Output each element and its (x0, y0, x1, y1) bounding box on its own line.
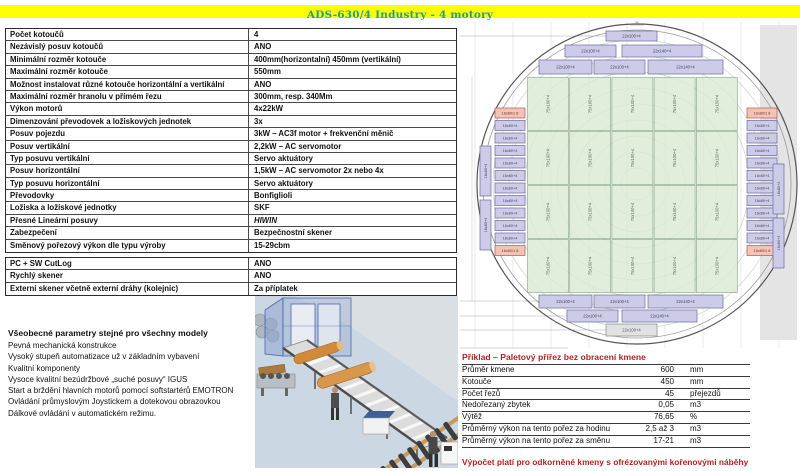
example-rows: Průměr kmene600mm Kotouče450mm Počet řez… (462, 364, 750, 448)
machine-illustration (255, 296, 458, 468)
svg-text:16x80/1 8: 16x80/1 8 (502, 249, 519, 253)
svg-text:16x80+4: 16x80+4 (755, 212, 770, 216)
svg-text:16x80+4: 16x80+4 (755, 187, 770, 191)
svg-text:75x100+4: 75x100+4 (630, 148, 635, 167)
svg-text:16x80+4: 16x80+4 (755, 237, 770, 241)
svg-text:22x100+4: 22x100+4 (581, 49, 600, 54)
svg-text:75x100+4: 75x100+4 (630, 94, 635, 113)
svg-text:75x100+4: 75x100+4 (588, 94, 593, 113)
svg-text:75x100+4: 75x100+4 (630, 202, 635, 221)
table-row: Typ posuvu horizontálníServo aktuátory (6, 178, 456, 190)
left-side-boards: 16x80/1 8 16x80+4 16x80+4 16x80+4 16x80+… (495, 108, 525, 256)
table-row: Výtěž76,65% (462, 411, 750, 423)
svg-text:16x80+4: 16x80+4 (503, 237, 518, 241)
top-boards: 22x100+4 22x100+4 22x140+4 22x100+4 22x1… (539, 31, 723, 74)
table-row: Průměrný výkon na tento pořez za hodinu2… (462, 423, 750, 435)
dimension-tick-label: 56 (635, 21, 639, 25)
table-row: Nezávislý posuv kotoučůANO (6, 41, 456, 53)
table-row: ZabezpečeníBezpečnostní skener (6, 227, 456, 239)
svg-text:22x100+4: 22x100+4 (583, 314, 602, 319)
svg-text:22x100+4: 22x100+4 (622, 34, 641, 39)
svg-text:22x100+4: 22x100+4 (556, 65, 575, 70)
table-row: Maximální rozměr hranolu v přímém řezu30… (6, 91, 456, 103)
svg-text:16x80+4: 16x80+4 (777, 182, 781, 197)
table-row: Počet řezů45přejezdů (462, 388, 750, 400)
svg-text:22x100+4: 22x100+4 (610, 299, 629, 304)
svg-text:75x100+4: 75x100+4 (546, 148, 551, 167)
svg-text:75x100+4: 75x100+4 (672, 148, 677, 167)
example-footer: Výpočet platí pro odkorněné kmeny s ofré… (462, 457, 750, 467)
green-boards: 75x100+4 75x100+4 75x100+4 75x100+4 75x1… (528, 78, 738, 293)
example-table: Příklad – Paletový přířez bez obracení k… (462, 351, 750, 467)
svg-text:75x100+4: 75x100+4 (546, 202, 551, 221)
svg-text:16x80+4: 16x80+4 (503, 224, 518, 228)
svg-text:16x80+4: 16x80+4 (503, 187, 518, 191)
spec-table: Počet kotoučů4 Nezávislý posuv kotoučůAN… (5, 28, 457, 253)
table-row: Směnový pořezový výkon dle typu výroby15… (6, 240, 456, 252)
svg-text:75x100+4: 75x100+4 (714, 148, 719, 167)
svg-text:16x80+4: 16x80+4 (755, 199, 770, 203)
table-row: Rychlý skenerANO (6, 270, 456, 282)
table-row: Průměr kmene600mm (462, 364, 750, 376)
table-row: Dimenzování převodovek a ložiskových jed… (6, 116, 456, 128)
svg-text:22x140+4: 22x140+4 (676, 65, 695, 70)
svg-text:75x100+4: 75x100+4 (588, 202, 593, 221)
table-row: Posuv vertikální2,2kW – AC servomotor (6, 141, 456, 153)
svg-text:16x80+4: 16x80+4 (755, 149, 770, 153)
svg-text:75x100+4: 75x100+4 (630, 256, 635, 275)
svg-text:22x100+4: 22x100+4 (610, 65, 629, 70)
table-row: PC + SW CutLogANO (6, 258, 456, 270)
table-row: Posuv pojezdu3kW – AC3f motor + frekvenč… (6, 128, 456, 140)
svg-text:16x80+4: 16x80+4 (755, 174, 770, 178)
table-row: PřevodovkyBonfiglioli (6, 190, 456, 202)
svg-text:22x100+4: 22x100+4 (556, 299, 575, 304)
table-row: Možnost instalovat různé kotouče horizon… (6, 79, 456, 91)
svg-text:16x80/1 8: 16x80/1 8 (754, 249, 771, 253)
svg-text:16x80+4: 16x80+4 (777, 236, 781, 251)
svg-text:16x80+4: 16x80+4 (503, 199, 518, 203)
svg-text:16x80+4: 16x80+4 (503, 212, 518, 216)
svg-text:75x100+4: 75x100+4 (672, 202, 677, 221)
svg-text:16x80/1 8: 16x80/1 8 (502, 112, 519, 116)
svg-text:75x100+4: 75x100+4 (588, 256, 593, 275)
table-row: Typ posuvu vertikálníServo aktuátory (6, 153, 456, 165)
svg-text:22x140+4: 22x140+4 (676, 299, 695, 304)
svg-text:75x100+4: 75x100+4 (588, 148, 593, 167)
svg-text:75x100+4: 75x100+4 (714, 202, 719, 221)
svg-text:16x80+4: 16x80+4 (503, 149, 518, 153)
table-row: Maximální rozměr kotouče550mm (6, 66, 456, 78)
control-cabinet (441, 442, 458, 464)
svg-text:16x80+4: 16x80+4 (755, 124, 770, 128)
table-row: Minimální rozměr kotouče400mm(horizontal… (6, 54, 456, 66)
svg-text:75x100+4: 75x100+4 (672, 94, 677, 113)
table-row: Ložiska a ložiskové jednotkySKF (6, 202, 456, 214)
svg-text:75x100+4: 75x100+4 (714, 94, 719, 113)
svg-text:16x80+4: 16x80+4 (503, 124, 518, 128)
table-row: Posuv horizontální1,5kW – AC servomotor … (6, 165, 456, 177)
svg-text:75x100+4: 75x100+4 (672, 256, 677, 275)
svg-text:75x100+4: 75x100+4 (546, 94, 551, 113)
title-bar: ADS-630/4 Industry - 4 motory (0, 5, 800, 18)
cutting-diagram: 56 22x100+4 22x100+4 22x140+4 22x100+4 2… (458, 18, 800, 354)
svg-text:16x80+4: 16x80+4 (755, 162, 770, 166)
svg-text:16x80+4: 16x80+4 (503, 162, 518, 166)
table-row: Kotouče450mm (462, 376, 750, 388)
svg-text:22x140+4: 22x140+4 (653, 49, 672, 54)
options-table: PC + SW CutLogANO Rychlý skenerANO Exter… (5, 257, 457, 296)
svg-text:16x80+4: 16x80+4 (503, 137, 518, 141)
svg-text:22x140+4: 22x140+4 (650, 314, 669, 319)
svg-text:16x80+4: 16x80+4 (484, 164, 488, 179)
table-row: Průměrný výkon na tento pořez za směnu17… (462, 435, 750, 447)
table-row: Externí skener včetně externí dráhy (kol… (6, 283, 456, 295)
svg-text:16x80/1 8: 16x80/1 8 (754, 112, 771, 116)
table-row: Počet kotoučů4 (6, 29, 456, 41)
svg-text:75x100+4: 75x100+4 (546, 256, 551, 275)
svg-text:16x80+4: 16x80+4 (503, 174, 518, 178)
svg-text:75x100+4: 75x100+4 (714, 256, 719, 275)
table-row: Nedořezaný zbytek0,05m3 (462, 399, 750, 411)
svg-text:16x80+4: 16x80+4 (484, 218, 488, 233)
table-row: Přesné Lineární posuvyHIWIN (6, 215, 456, 227)
svg-text:16x80+4: 16x80+4 (755, 137, 770, 141)
svg-text:16x80+4: 16x80+4 (755, 224, 770, 228)
svg-text:22x100+4: 22x100+4 (622, 328, 641, 333)
table-row: Výkon motorů4x22kW (6, 103, 456, 115)
